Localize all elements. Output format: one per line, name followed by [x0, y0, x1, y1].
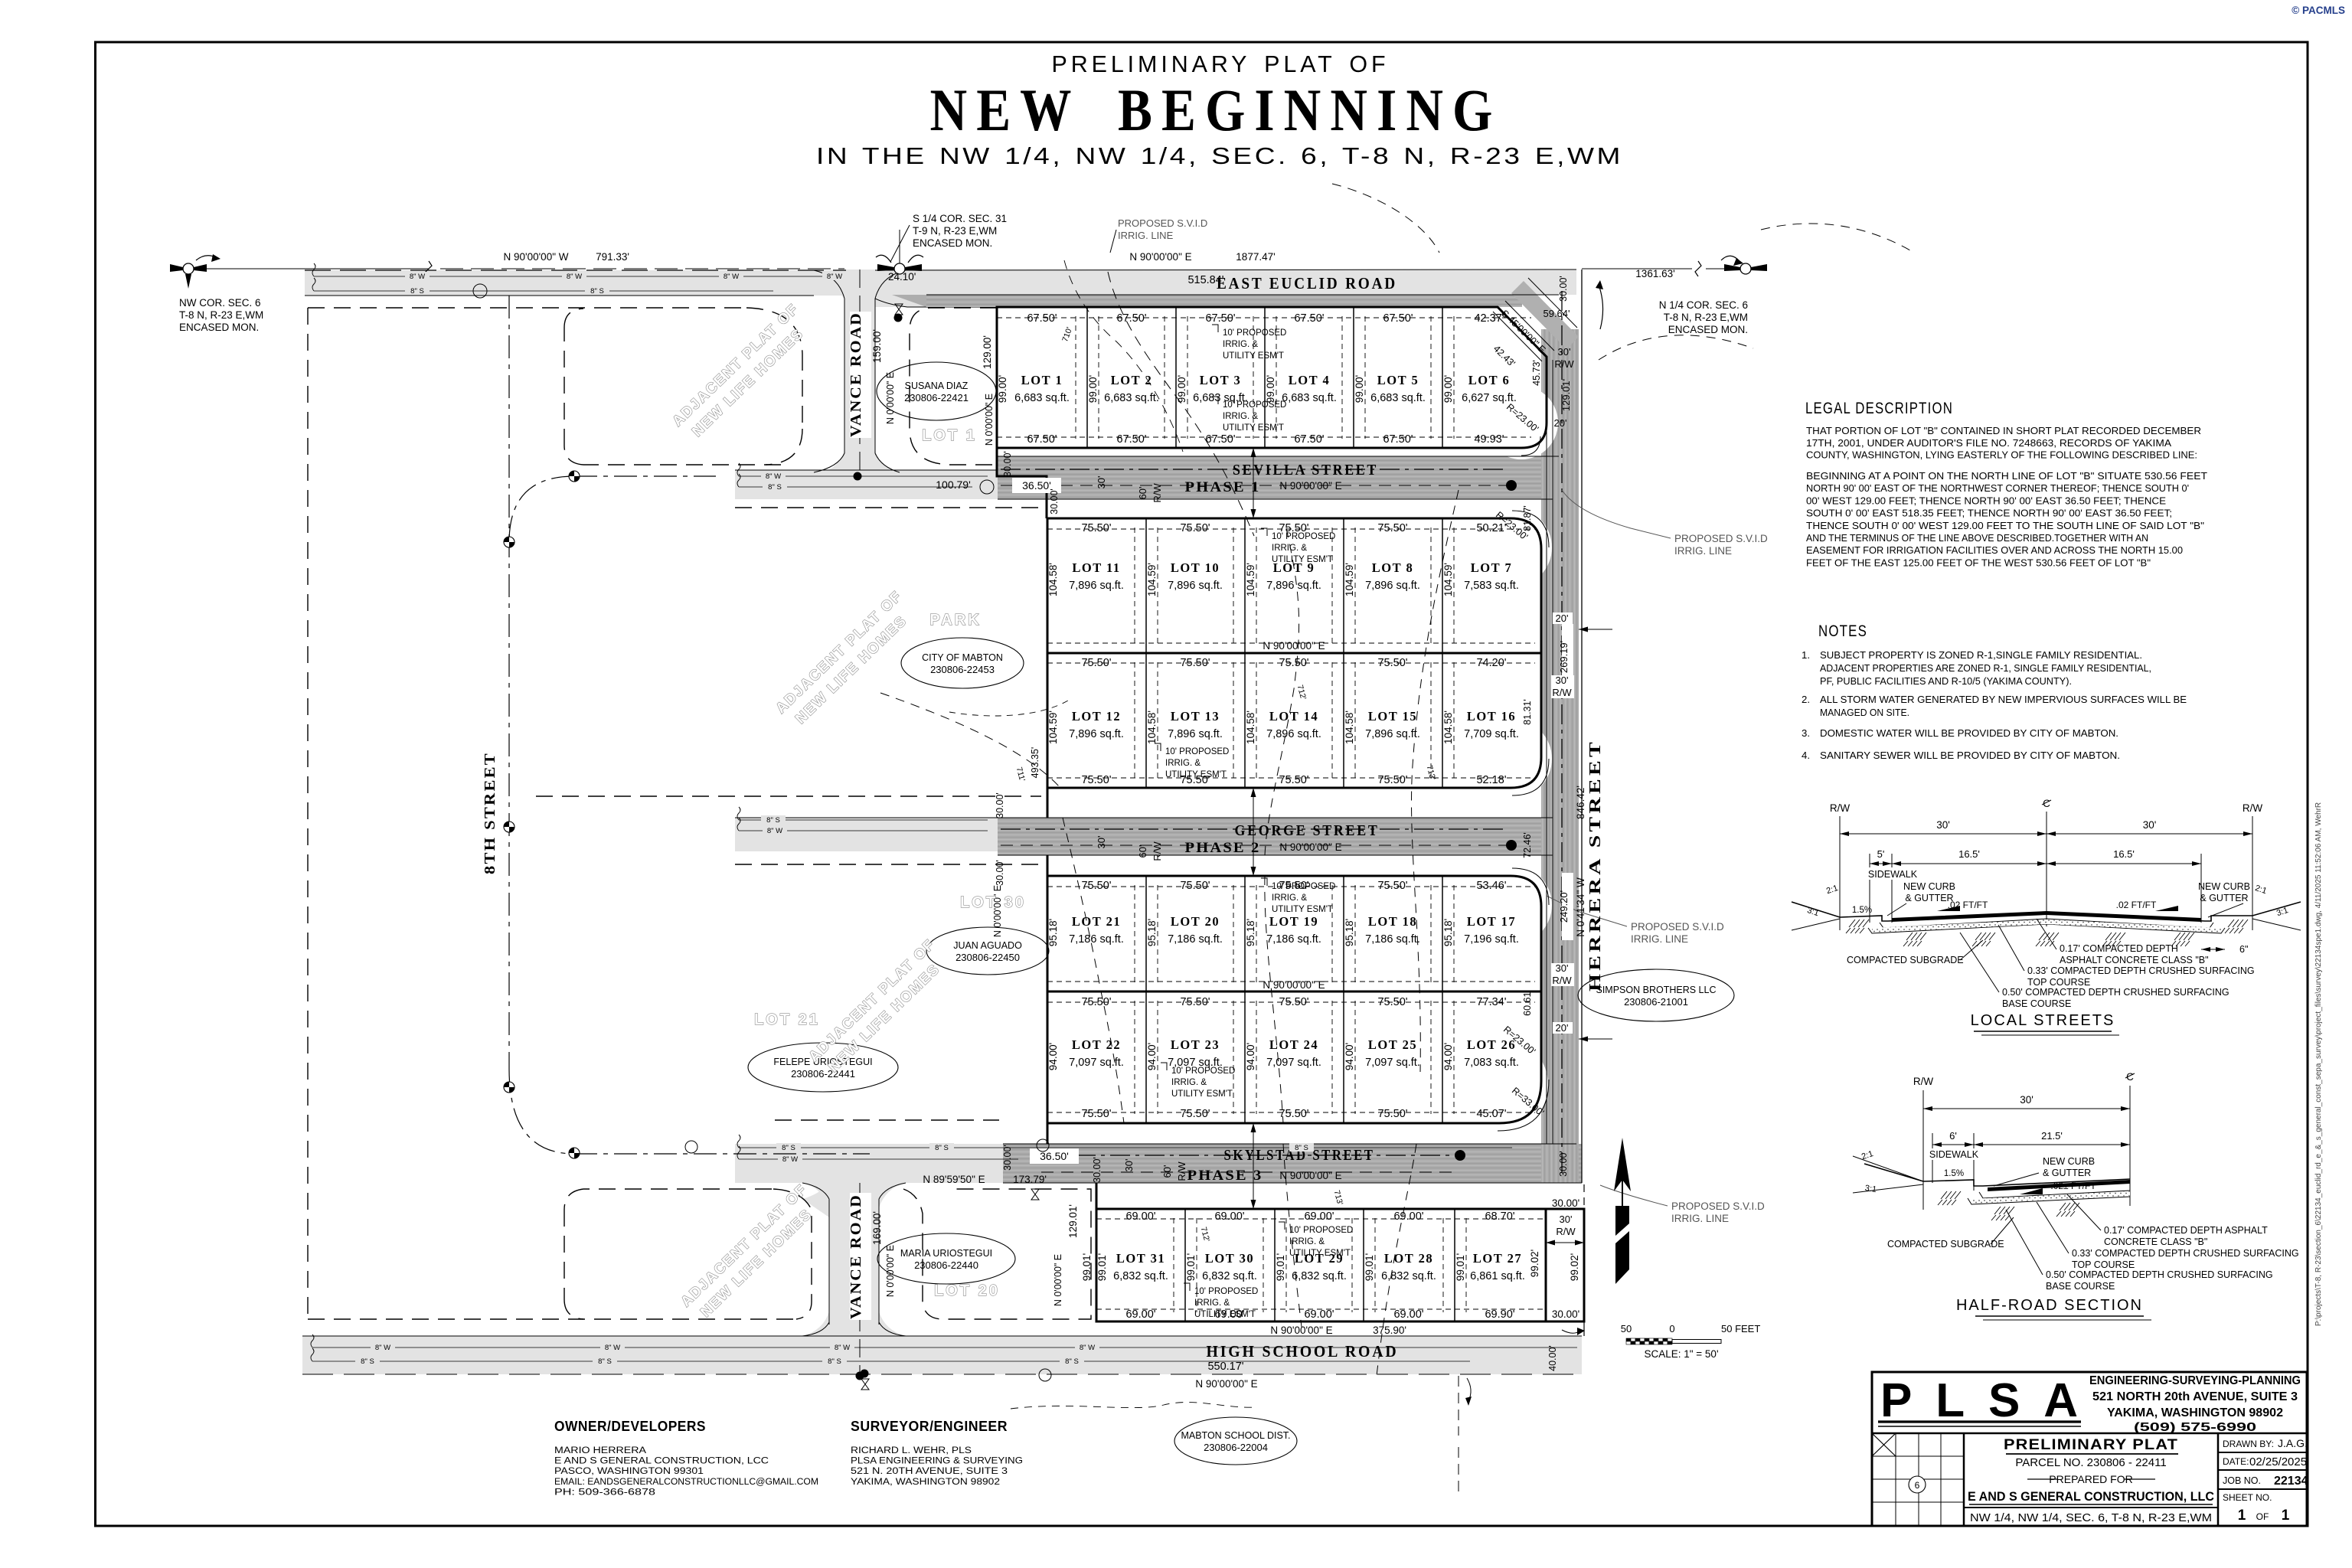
svg-text:60': 60'	[1137, 845, 1148, 858]
svg-text:69.00': 69.00'	[1125, 1308, 1155, 1321]
svg-text:LOT 30: LOT 30	[1205, 1251, 1254, 1266]
svg-text:99.00': 99.00'	[1176, 375, 1187, 403]
svg-text:129.01': 129.01'	[1067, 1204, 1079, 1238]
svg-text:EASEMENT FOR IRRIGATION FACILI: EASEMENT FOR IRRIGATION FACILITIES OVER …	[1806, 544, 2183, 556]
svg-text:SOUTH 0' 00' EAST 518.35 FEET;: SOUTH 0' 00' EAST 518.35 FEET; THENCE NO…	[1806, 508, 2172, 519]
svg-text:AND THE TERMINUS OF THE LINE A: AND THE TERMINUS OF THE LINE ABOVE DESCR…	[1806, 532, 2148, 544]
svg-text:30': 30'	[1096, 476, 1107, 489]
svg-text:104.58': 104.58'	[1344, 710, 1355, 744]
svg-text:PASCO, WASHINGTON 99301: PASCO, WASHINGTON 99301	[554, 1465, 704, 1476]
svg-text:81.31': 81.31'	[1522, 699, 1533, 725]
svg-text:100.79': 100.79'	[936, 479, 971, 491]
svg-text:8" S: 8" S	[766, 816, 780, 825]
svg-text:SIDEWALK: SIDEWALK	[1868, 869, 1918, 880]
svg-text:DATE:: DATE:	[2223, 1456, 2249, 1467]
svg-text:IRRIG. LINE: IRRIG. LINE	[1631, 933, 1688, 945]
svg-text:IRRIG. &: IRRIG. &	[1289, 1237, 1325, 1246]
svg-text:PHASE 1: PHASE 1	[1185, 479, 1261, 495]
svg-text:30': 30'	[2143, 819, 2157, 831]
svg-text:ENCASED MON.: ENCASED MON.	[913, 237, 992, 249]
svg-text:RICHARD L. WEHR, PLS: RICHARD L. WEHR, PLS	[851, 1445, 972, 1455]
svg-text:LOT 3: LOT 3	[1200, 373, 1241, 387]
svg-text:36.50': 36.50'	[1040, 1150, 1069, 1162]
svg-text:30': 30'	[1936, 819, 1950, 831]
svg-text:JUAN AGUADO: JUAN AGUADO	[953, 940, 1022, 951]
svg-text:67.50': 67.50'	[1205, 312, 1235, 325]
svg-text:60': 60'	[1161, 1165, 1173, 1178]
svg-text:1.: 1.	[1802, 649, 1810, 661]
svg-text:PROPOSED S.V.I.D: PROPOSED S.V.I.D	[1671, 1200, 1765, 1212]
svg-text:JOB NO.: JOB NO.	[2223, 1475, 2261, 1486]
svg-text:HALF-ROAD SECTION: HALF-ROAD SECTION	[1956, 1297, 2143, 1314]
svg-text:75.50': 75.50'	[1279, 1108, 1308, 1120]
svg-text:791.33': 791.33'	[596, 251, 629, 263]
svg-text:230806-22421: 230806-22421	[904, 392, 969, 403]
svg-text:20': 20'	[1556, 1022, 1569, 1034]
svg-text:P:\projects\T-8, R-23\section_: P:\projects\T-8, R-23\section_6\22134_eu…	[2314, 802, 2323, 1326]
svg-text:R/W: R/W	[1151, 841, 1163, 861]
svg-text:10' PROPOSED: 10' PROPOSED	[1289, 1226, 1353, 1235]
svg-text:104.59': 104.59'	[1442, 563, 1454, 596]
svg-text:60.61': 60.61'	[1522, 990, 1533, 1016]
svg-text:69.00': 69.00'	[1125, 1210, 1155, 1223]
svg-text:HIGH SCHOOL ROAD: HIGH SCHOOL ROAD	[1207, 1342, 1399, 1361]
svg-text:IRRIG. LINE: IRRIG. LINE	[1671, 1213, 1729, 1224]
svg-text:N 90'00'00" E: N 90'00'00" E	[1129, 251, 1191, 263]
svg-text:67.50': 67.50'	[1116, 433, 1146, 446]
svg-text:94.00': 94.00'	[1344, 1043, 1355, 1070]
svg-text:SIDEWALK: SIDEWALK	[1929, 1149, 1979, 1160]
svg-text:36.50': 36.50'	[1022, 479, 1051, 492]
svg-text:COMPACTED SUBGRADE: COMPACTED SUBGRADE	[1847, 955, 1964, 965]
svg-text:30': 30'	[1556, 675, 1569, 686]
svg-text:75.50': 75.50'	[1279, 657, 1308, 669]
svg-text:30.00': 30.00'	[1552, 1308, 1579, 1320]
svg-text:FEET OF THE EAST 125.00 FEET O: FEET OF THE EAST 125.00 FEET OF THE WEST…	[1806, 557, 2151, 568]
svg-text:SCALE: 1" = 50': SCALE: 1" = 50'	[1644, 1348, 1718, 1360]
svg-text:IRRIG. &: IRRIG. &	[1223, 412, 1258, 421]
svg-text:7,896 sq.ft.: 7,896 sq.ft.	[1365, 580, 1420, 592]
svg-text:7,896 sq.ft.: 7,896 sq.ft.	[1168, 728, 1223, 740]
svg-text:159.00': 159.00'	[871, 329, 883, 363]
svg-text:N 0'41'34" W: N 0'41'34" W	[1575, 877, 1586, 937]
svg-text:IRRIG. &: IRRIG. &	[1272, 893, 1307, 903]
svg-text:SURVEYOR/ENGINEER: SURVEYOR/ENGINEER	[851, 1419, 1008, 1434]
svg-text:7,186 sq.ft.: 7,186 sq.ft.	[1365, 933, 1420, 946]
svg-text:5': 5'	[1877, 848, 1885, 860]
svg-text:LOT 1: LOT 1	[1021, 373, 1063, 387]
svg-text:N 89'59'50" E: N 89'59'50" E	[923, 1174, 985, 1185]
svg-text:129.00': 129.00'	[982, 335, 993, 369]
svg-text:N 90'00'00" E: N 90'00'00" E	[1195, 1378, 1257, 1390]
svg-text:10' PROPOSED: 10' PROPOSED	[1272, 882, 1335, 891]
svg-text:75.50': 75.50'	[1081, 996, 1111, 1008]
svg-text:104.59': 104.59'	[1146, 563, 1158, 596]
svg-text:493.35': 493.35'	[1030, 747, 1040, 779]
svg-text:40.00': 40.00'	[1547, 1345, 1558, 1371]
svg-text:104.58': 104.58'	[1245, 710, 1256, 744]
svg-text:75.50': 75.50'	[1377, 657, 1407, 669]
svg-text:7,896 sq.ft.: 7,896 sq.ft.	[1069, 728, 1124, 740]
svg-text:30': 30'	[2020, 1094, 2033, 1106]
svg-text:T-9 N, R-23 E,WM: T-9 N, R-23 E,WM	[913, 225, 997, 237]
svg-text:OWNER/DEVELOPERS: OWNER/DEVELOPERS	[554, 1419, 706, 1434]
svg-text:PROPOSED S.V.I.D: PROPOSED S.V.I.D	[1118, 217, 1207, 229]
svg-text:ENGINEERING-SURVEYING-PLANNING: ENGINEERING-SURVEYING-PLANNING	[2089, 1374, 2301, 1387]
svg-text:75.50': 75.50'	[1081, 774, 1111, 786]
svg-text:N 90'00'00" E: N 90'00'00" E	[1279, 1170, 1341, 1181]
svg-text:R/W: R/W	[1552, 975, 1572, 986]
svg-text:N 0'00'00" E: N 0'00'00" E	[885, 372, 896, 424]
svg-text:IRRIG. &: IRRIG. &	[1272, 544, 1307, 553]
svg-text:30.00': 30.00'	[1049, 488, 1060, 514]
svg-text:69.00': 69.00'	[1304, 1308, 1334, 1321]
svg-text:1: 1	[2238, 1508, 2246, 1524]
svg-text:PLSA ENGINEERING & SURVEYING: PLSA ENGINEERING & SURVEYING	[851, 1455, 1023, 1466]
svg-text:81.87': 81.87'	[1522, 505, 1533, 531]
svg-text:95.18': 95.18'	[1146, 919, 1158, 946]
svg-text:N 1/4 COR. SEC. 6: N 1/4 COR. SEC. 6	[1659, 299, 1748, 311]
svg-text:LEGAL DESCRIPTION: LEGAL DESCRIPTION	[1805, 400, 1953, 417]
svg-text:PARK: PARK	[929, 612, 981, 629]
svg-text:8" S: 8" S	[768, 483, 782, 492]
svg-text:30.00': 30.00'	[995, 860, 1005, 886]
svg-text:N 90'00'00" E: N 90'00'00" E	[1279, 841, 1341, 853]
svg-text:E AND S GENERAL CONSTRUCTION,: E AND S GENERAL CONSTRUCTION, LLC	[1968, 1490, 2214, 1504]
svg-text:UTILITY ESM'T: UTILITY ESM'T	[1223, 351, 1284, 361]
svg-text:3:1: 3:1	[1864, 1184, 1877, 1194]
svg-text:17TH, 2001, UNDER AUDITOR'S FI: 17TH, 2001, UNDER AUDITOR'S FILE NO. 724…	[1806, 437, 2171, 449]
svg-text:1.5%: 1.5%	[1944, 1169, 1964, 1178]
svg-text:99.02': 99.02'	[1529, 1249, 1540, 1277]
svg-text:LOT 2: LOT 2	[1111, 373, 1152, 387]
svg-text:PRELIMINARY PLAT: PRELIMINARY PLAT	[2004, 1437, 2178, 1453]
svg-text:99.00': 99.00'	[1087, 375, 1099, 403]
svg-text:30.00': 30.00'	[1558, 1151, 1569, 1177]
svg-text:104.58': 104.58'	[1442, 710, 1454, 744]
svg-text:THENCE SOUTH 0' 00' WEST 129.0: THENCE SOUTH 0' 00' WEST 129.00 FEET TO …	[1806, 520, 2204, 531]
svg-text:7,097 sq.ft.: 7,097 sq.ft.	[1069, 1057, 1124, 1069]
svg-text:PARCEL NO. 230806 - 22411: PARCEL NO. 230806 - 22411	[2015, 1456, 2166, 1469]
svg-text:R/W: R/W	[1552, 687, 1572, 698]
svg-text:2.: 2.	[1802, 694, 1810, 705]
svg-text:95.18': 95.18'	[1047, 919, 1059, 946]
svg-text:.02± FT/FT: .02± FT/FT	[2050, 1181, 2096, 1191]
svg-text:IN THE NW 1/4, NW 1/4, S: IN THE NW 1/4, NW 1/4, SEC. 6, T-8 N, R-…	[816, 142, 1623, 169]
svg-text:LOT 15: LOT 15	[1368, 709, 1417, 724]
svg-text:8" W: 8" W	[766, 472, 781, 481]
svg-text:N 0'00'00" E: N 0'00'00" E	[885, 1245, 896, 1297]
svg-text:7,097 sq.ft.: 7,097 sq.ft.	[1365, 1057, 1420, 1069]
svg-text:69.00': 69.00'	[1393, 1308, 1423, 1321]
svg-text:& GUTTER: & GUTTER	[2200, 893, 2248, 903]
svg-text:LOT 23: LOT 23	[1171, 1037, 1220, 1052]
svg-text:269.19': 269.19'	[1558, 641, 1570, 673]
svg-text:30.00': 30.00'	[995, 792, 1005, 818]
svg-text:94.00': 94.00'	[1146, 1043, 1158, 1070]
svg-text:PHASE 2: PHASE 2	[1185, 840, 1261, 856]
svg-text:10' PROPOSED: 10' PROPOSED	[1194, 1287, 1258, 1296]
svg-text:NEW BEGINNING: NEW BEGINNING	[930, 77, 1502, 143]
svg-text:8" S: 8" S	[782, 1144, 795, 1152]
svg-text:95.18': 95.18'	[1245, 919, 1256, 946]
svg-text:75.50': 75.50'	[1377, 880, 1407, 892]
svg-text:R/W: R/W	[1151, 483, 1163, 503]
svg-text:67.50': 67.50'	[1294, 312, 1324, 325]
svg-text:6,832 sq.ft.: 6,832 sq.ft.	[1113, 1270, 1168, 1282]
svg-text:CONCRETE CLASS "B": CONCRETE CLASS "B"	[2104, 1236, 2207, 1247]
svg-text:7,196 sq.ft.: 7,196 sq.ft.	[1464, 933, 1519, 946]
svg-text:LOT 30: LOT 30	[960, 894, 1026, 911]
svg-text:230806-22441: 230806-22441	[791, 1068, 855, 1080]
svg-text:SHEET NO.: SHEET NO.	[2223, 1492, 2272, 1503]
svg-text:0.50' COMPACTED DEPTH CRUSHED: 0.50' COMPACTED DEPTH CRUSHED SURFACING	[2046, 1269, 2273, 1280]
svg-text:30.00': 30.00'	[1558, 276, 1569, 302]
svg-text:YAKIMA, WASHINGTON 98902: YAKIMA, WASHINGTON 98902	[2107, 1406, 2283, 1419]
svg-text:LOT 7: LOT 7	[1471, 560, 1512, 575]
svg-text:69.00': 69.00'	[1393, 1210, 1423, 1223]
svg-text:LOT 8: LOT 8	[1372, 560, 1413, 575]
svg-text:3.: 3.	[1802, 727, 1810, 739]
svg-text:0.33' COMPACTED DEPTH CRUSHED: 0.33' COMPACTED DEPTH CRUSHED SURFACING	[2072, 1248, 2299, 1259]
svg-text:0.17' COMPACTED DEPTH ASPHALT: 0.17' COMPACTED DEPTH ASPHALT	[2104, 1225, 2268, 1236]
svg-text:67.50': 67.50'	[1383, 312, 1413, 325]
svg-text:R/W: R/W	[1913, 1076, 1934, 1087]
svg-text:HERRERA STREET: HERRERA STREET	[1586, 739, 1604, 991]
svg-text:53.46': 53.46'	[1476, 880, 1506, 892]
svg-text:N 90'00'00" E: N 90'00'00" E	[1263, 640, 1325, 652]
svg-text:99.02': 99.02'	[1569, 1253, 1580, 1281]
svg-text:.02 FT/FT: .02 FT/FT	[2116, 900, 2157, 910]
svg-text:75.50': 75.50'	[1081, 657, 1111, 669]
svg-text:EMAIL: EANDSGENERALCONSTRUCTIO: EMAIL: EANDSGENERALCONSTRUCTIONLLC@GMAIL…	[554, 1476, 818, 1487]
svg-text:UTILITY ESM'T: UTILITY ESM'T	[1194, 1310, 1256, 1319]
svg-text:& GUTTER: & GUTTER	[1905, 893, 1953, 903]
svg-text:ALL STORM WATER GENERATED BY N: ALL STORM WATER GENERATED BY NEW IMPERVI…	[1820, 694, 2187, 705]
svg-text:846.42': 846.42'	[1575, 786, 1586, 819]
svg-text:UTILITY ESM'T: UTILITY ESM'T	[1171, 1089, 1233, 1099]
svg-text:UTILITY ESM'T: UTILITY ESM'T	[1165, 770, 1227, 779]
svg-text:BASE COURSE: BASE COURSE	[2046, 1281, 2115, 1292]
svg-text:N 0'00'00" E: N 0'00'00" E	[1053, 1254, 1063, 1306]
svg-text:R/W: R/W	[1556, 1226, 1576, 1237]
svg-text:75.50': 75.50'	[1081, 1108, 1111, 1120]
svg-text:BASE COURSE: BASE COURSE	[2002, 998, 2071, 1009]
svg-text:50: 50	[1621, 1323, 1632, 1334]
svg-text:BEGINNING AT A POINT ON THE NO: BEGINNING AT A POINT ON THE NORTH LINE O…	[1806, 470, 2207, 482]
svg-text:ASPHALT CONCRETE CLASS "B": ASPHALT CONCRETE CLASS "B"	[2060, 955, 2209, 965]
svg-text:LOT 26: LOT 26	[1467, 1037, 1516, 1052]
svg-text:SIMPSON BROTHERS LLC: SIMPSON BROTHERS LLC	[1596, 985, 1717, 995]
svg-text:8" S: 8" S	[410, 287, 424, 296]
svg-text:75.50': 75.50'	[1377, 774, 1407, 786]
svg-text:16.5': 16.5'	[2113, 848, 2135, 860]
svg-text:10' PROPOSED: 10' PROPOSED	[1272, 532, 1335, 541]
svg-text:1877.47': 1877.47'	[1236, 251, 1275, 263]
svg-text:8" S: 8" S	[361, 1357, 374, 1366]
svg-text:99.01': 99.01'	[1185, 1253, 1197, 1281]
svg-text:TOP COURSE: TOP COURSE	[2027, 977, 2090, 988]
svg-text:NEW CURB: NEW CURB	[2043, 1156, 2095, 1167]
svg-text:PREPARED FOR: PREPARED FOR	[2049, 1473, 2132, 1485]
svg-text:67.50': 67.50'	[1205, 433, 1235, 446]
svg-text:30': 30'	[1560, 1214, 1573, 1225]
svg-text:0.17' COMPACTED DEPTH: 0.17' COMPACTED DEPTH	[2060, 943, 2178, 954]
svg-text:21.5': 21.5'	[2041, 1130, 2063, 1142]
svg-text:75.50': 75.50'	[1081, 522, 1111, 534]
svg-text:MARIA URIOSTEGUI: MARIA URIOSTEGUI	[900, 1248, 992, 1259]
svg-text:95.18': 95.18'	[1442, 919, 1454, 946]
svg-text:50 FEET: 50 FEET	[1721, 1323, 1760, 1334]
svg-text:LOT 16: LOT 16	[1467, 709, 1516, 724]
svg-text:LOT 17: LOT 17	[1467, 914, 1516, 929]
svg-text:8" S: 8" S	[828, 1357, 841, 1366]
svg-text:LOT 20: LOT 20	[1171, 914, 1220, 929]
svg-text:THAT PORTION OF LOT "B" CONTAI: THAT PORTION OF LOT "B" CONTAINED IN SHO…	[1806, 425, 2201, 436]
svg-text:LOT 19: LOT 19	[1269, 914, 1318, 929]
svg-text:8" S: 8" S	[598, 1357, 612, 1366]
svg-text:LOT 20: LOT 20	[934, 1282, 1000, 1299]
svg-text:8" W: 8" W	[782, 1155, 798, 1164]
svg-text:24.10': 24.10'	[888, 271, 916, 283]
svg-text:75.50': 75.50'	[1081, 880, 1111, 892]
svg-text:94.00': 94.00'	[1245, 1043, 1256, 1070]
svg-text:LOT 21: LOT 21	[1072, 914, 1121, 929]
svg-text:EAST EUCLID ROAD: EAST EUCLID ROAD	[1217, 274, 1397, 292]
svg-text:LOT 24: LOT 24	[1269, 1037, 1318, 1052]
svg-text:8" W: 8" W	[835, 1344, 850, 1352]
svg-text:LOT 28: LOT 28	[1384, 1251, 1433, 1266]
svg-text:75.50': 75.50'	[1180, 996, 1210, 1008]
svg-text:MARIO HERRERA: MARIO HERRERA	[554, 1445, 647, 1455]
svg-text:E AND S GENERAL CONSTRUCTION,: E AND S GENERAL CONSTRUCTION, LCC	[554, 1455, 769, 1466]
svg-text:30': 30'	[1096, 836, 1107, 849]
svg-text:69.00': 69.00'	[1304, 1210, 1334, 1223]
svg-text:MANAGED ON SITE.: MANAGED ON SITE.	[1820, 707, 1909, 718]
svg-text:7,083 sq.ft.: 7,083 sq.ft.	[1464, 1057, 1519, 1069]
svg-text:UTILITY ESM'T: UTILITY ESM'T	[1289, 1249, 1351, 1258]
svg-text:7,097 sq.ft.: 7,097 sq.ft.	[1266, 1057, 1321, 1069]
svg-text:1.5%: 1.5%	[1852, 906, 1872, 915]
svg-text:7,896 sq.ft.: 7,896 sq.ft.	[1168, 580, 1223, 592]
svg-text:8" W: 8" W	[827, 273, 842, 281]
svg-text:230806-22440: 230806-22440	[914, 1259, 978, 1271]
svg-text:R/W: R/W	[1554, 358, 1574, 370]
svg-text:R/W: R/W	[1176, 1161, 1187, 1181]
svg-text:OF: OF	[2256, 1511, 2269, 1522]
svg-text:0.50' COMPACTED DEPTH CRUSHED: 0.50' COMPACTED DEPTH CRUSHED SURFACING	[2002, 987, 2229, 998]
svg-text:67.50': 67.50'	[1027, 433, 1057, 446]
svg-text:8" S: 8" S	[590, 287, 604, 296]
svg-text:16.5': 16.5'	[1958, 848, 1980, 860]
svg-text:75.50': 75.50'	[1279, 774, 1308, 786]
svg-text:30.00': 30.00'	[1002, 1145, 1013, 1171]
svg-text:LOT 13: LOT 13	[1171, 709, 1220, 724]
svg-text:GEORGE STREET: GEORGE STREET	[1235, 822, 1380, 839]
svg-text:169.00': 169.00'	[871, 1211, 883, 1245]
svg-text:T-8 N, R-23 E,WM: T-8 N, R-23 E,WM	[1664, 312, 1748, 323]
svg-text:30': 30'	[1123, 1159, 1135, 1172]
svg-text:94.00': 94.00'	[1047, 1043, 1059, 1070]
svg-text:75.50': 75.50'	[1180, 1108, 1210, 1120]
svg-text:59.64': 59.64'	[1543, 308, 1570, 319]
svg-text:230806-22453: 230806-22453	[930, 664, 995, 675]
svg-text:8" S: 8" S	[935, 1144, 949, 1152]
svg-text:PHASE 3: PHASE 3	[1187, 1168, 1263, 1184]
svg-text:ENCASED MON.: ENCASED MON.	[1668, 324, 1748, 335]
svg-text:LOCAL STREETS: LOCAL STREETS	[1971, 1012, 2115, 1029]
svg-text:8" W: 8" W	[410, 273, 425, 281]
svg-text:8" W: 8" W	[567, 273, 582, 281]
svg-text:6,861 sq.ft.: 6,861 sq.ft.	[1470, 1270, 1525, 1282]
svg-text:6,832 sq.ft.: 6,832 sq.ft.	[1202, 1270, 1257, 1282]
svg-text:(509) 575-6990: (509) 575-6990	[2134, 1421, 2256, 1434]
svg-text:6,832 sq.ft.: 6,832 sq.ft.	[1292, 1270, 1347, 1282]
svg-text:CITY OF MABTON: CITY OF MABTON	[922, 652, 1003, 663]
svg-text:DOMESTIC WATER WILL BE PROVIDE: DOMESTIC WATER WILL BE PROVIDED BY CITY …	[1820, 727, 2118, 739]
svg-text:94.00': 94.00'	[1442, 1043, 1454, 1070]
svg-text:8" S: 8" S	[1065, 1357, 1079, 1366]
svg-text:30.00': 30.00'	[1552, 1197, 1579, 1209]
svg-text:30.00': 30.00'	[1092, 1157, 1102, 1183]
svg-text:TOP COURSE: TOP COURSE	[2072, 1259, 2135, 1270]
svg-text:UTILITY ESM'T: UTILITY ESM'T	[1272, 905, 1333, 914]
svg-text:N 90'00'00" E: N 90'00'00" E	[1263, 979, 1325, 991]
svg-text:PROPOSED S.V.I.D: PROPOSED S.V.I.D	[1631, 921, 1724, 933]
svg-text:74.20': 74.20'	[1476, 657, 1506, 669]
svg-text:SEVILLA STREET: SEVILLA STREET	[1233, 462, 1378, 479]
svg-text:© PACMLS: © PACMLS	[2292, 5, 2345, 16]
svg-text:22134: 22134	[2274, 1475, 2308, 1488]
svg-text:6,683 sq.ft.: 6,683 sq.ft.	[1282, 392, 1337, 404]
svg-text:PROPOSED S.V.I.D: PROPOSED S.V.I.D	[1674, 533, 1768, 544]
svg-text:104.59': 104.59'	[1047, 710, 1059, 744]
svg-text:6,683 sq.ft.: 6,683 sq.ft.	[1370, 392, 1426, 404]
svg-text:7,709 sq.ft.: 7,709 sq.ft.	[1464, 728, 1519, 740]
svg-text:99.00': 99.00'	[1265, 375, 1276, 403]
svg-text:75.50': 75.50'	[1377, 996, 1407, 1008]
svg-text:60': 60'	[1137, 487, 1148, 500]
svg-text:LOT 5: LOT 5	[1377, 373, 1419, 387]
svg-text:7,896 sq.ft.: 7,896 sq.ft.	[1069, 580, 1124, 592]
svg-text:75.50': 75.50'	[1279, 996, 1308, 1008]
svg-text:67.50': 67.50'	[1116, 312, 1146, 325]
svg-text:PH: 509-366-6878: PH: 509-366-6878	[554, 1486, 655, 1497]
svg-text:ADJACENT PROPERTIES ARE ZONED: ADJACENT PROPERTIES ARE ZONED R-1, SINGL…	[1820, 662, 2151, 674]
svg-text:6,683 sq.ft.: 6,683 sq.ft.	[1104, 392, 1159, 404]
svg-text:521 NORTH 20th AVENUE, SUITE 3: 521 NORTH 20th AVENUE, SUITE 3	[2092, 1390, 2298, 1403]
svg-text:LOT 14: LOT 14	[1269, 709, 1318, 724]
svg-text:45.73': 45.73'	[1531, 360, 1542, 386]
svg-text:MABTON SCHOOL DIST.: MABTON SCHOOL DIST.	[1181, 1430, 1290, 1441]
svg-text:375.90': 375.90'	[1373, 1325, 1406, 1336]
svg-text:6": 6"	[2239, 944, 2248, 955]
svg-text:6: 6	[1915, 1480, 1920, 1491]
svg-text:67.50': 67.50'	[1383, 433, 1413, 446]
svg-text:S 1/4 COR. SEC. 31: S 1/4 COR. SEC. 31	[913, 213, 1007, 224]
svg-text:99.01': 99.01'	[1275, 1253, 1286, 1281]
svg-text:0.33' COMPACTED DEPTH CRUSHED: 0.33' COMPACTED DEPTH CRUSHED SURFACING	[2027, 965, 2255, 976]
svg-text:104.59': 104.59'	[1344, 563, 1355, 596]
svg-text:8" W: 8" W	[605, 1344, 620, 1352]
svg-text:7,583 sq.ft.: 7,583 sq.ft.	[1464, 580, 1519, 592]
svg-text:& GUTTER: & GUTTER	[2043, 1168, 2091, 1178]
svg-text:8" S: 8" S	[1295, 1144, 1308, 1152]
svg-text:30': 30'	[1558, 346, 1571, 358]
svg-text:N 90'00'00" W: N 90'00'00" W	[504, 251, 569, 263]
svg-text:N 0'00'00" E: N 0'00'00" E	[992, 885, 1003, 937]
svg-text:99.01': 99.01'	[1081, 1253, 1093, 1281]
